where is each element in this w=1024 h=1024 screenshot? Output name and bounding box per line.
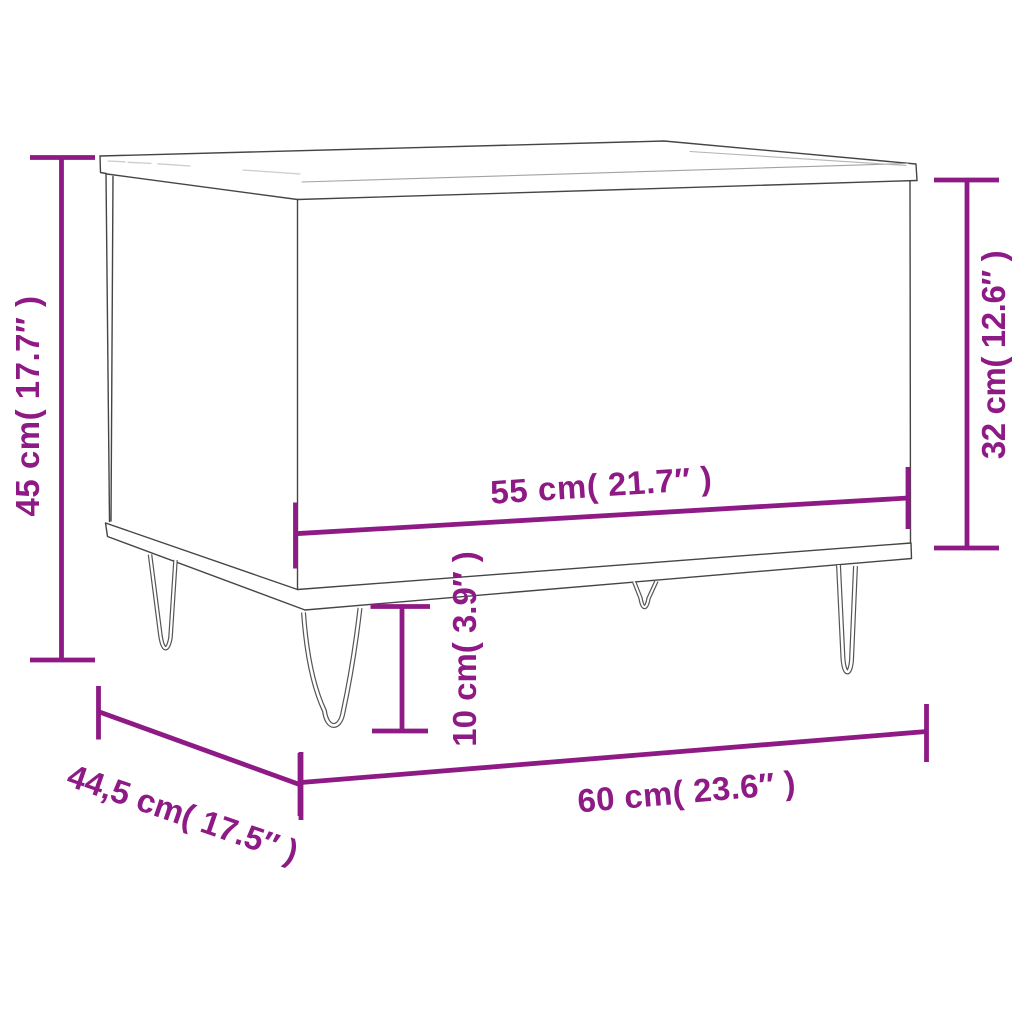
svg-text:10 cm( 3.9″ ): 10 cm( 3.9″ ) xyxy=(446,551,483,747)
svg-text:45 cm( 17.7″ ): 45 cm( 17.7″ ) xyxy=(9,296,46,517)
svg-text:32 cm( 12.6″ ): 32 cm( 12.6″ ) xyxy=(975,251,1012,459)
